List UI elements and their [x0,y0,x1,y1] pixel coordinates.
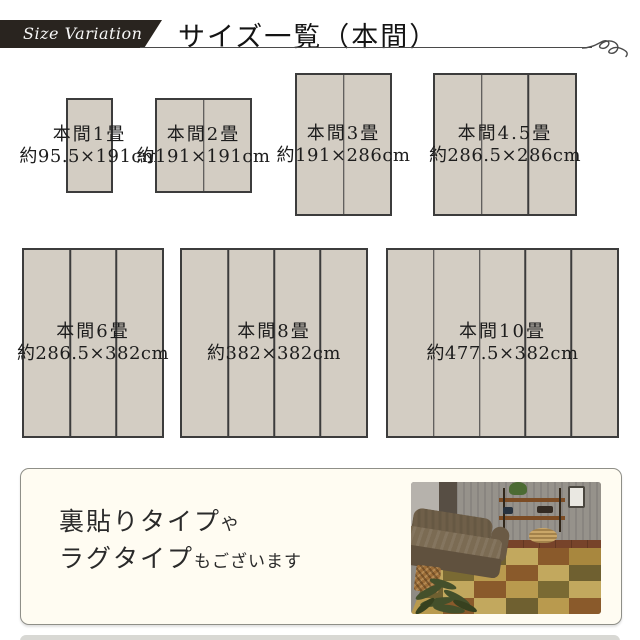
rug-cell [569,598,601,615]
size-label: 本間3畳約191×286cm [277,123,411,167]
size-dimensions: 約191×286cm [277,145,411,167]
size-swatch-5: 本間6畳約286.5×382cm [22,248,164,438]
size-swatch-6: 本間8畳約382×382cm [180,248,368,438]
size-name: 本間8畳 [207,321,341,343]
photo-hanging-cloth [568,486,585,508]
photo-shelf [499,516,565,520]
size-name: 本間4.5畳 [429,123,581,145]
size-label: 本間6畳約286.5×382cm [17,321,169,365]
next-section-edge [20,635,620,640]
size-label: 本間10畳約477.5×382cm [426,321,578,365]
footer-note-text: 裏貼りタイプや ラグタイプもございます [59,505,302,579]
footer-note-line2: ラグタイプもございます [59,542,302,579]
ribbon-label: Size Variation [0,20,162,47]
size-swatch-7: 本間10畳約477.5×382cm [386,248,619,438]
section-ribbon: Size Variation [0,20,162,48]
footer-note-line1: 裏貼りタイプや [59,505,302,542]
size-dimensions: 約286.5×382cm [17,343,169,365]
rug-cell [538,581,570,598]
size-swatch-3: 本間3畳約191×286cm [295,73,392,216]
photo-shelf-items [537,506,553,513]
rug-cell [569,548,601,565]
photo-basket [529,528,557,543]
size-name: 本間3畳 [277,123,411,145]
size-dimensions: 約477.5×382cm [426,343,578,365]
rug-cell [538,598,570,615]
size-chart-page: Size Variation サイズ一覧（本間） 本間1畳約95.5×191cm… [0,0,640,640]
size-name: 本間6畳 [17,321,169,343]
size-dimensions: 約191×191cm [137,146,271,168]
rug-cell [569,581,601,598]
photo-shelf-leg [559,488,561,532]
size-label: 本間4.5畳約286.5×286cm [429,123,581,167]
size-dimensions: 約286.5×286cm [429,145,581,167]
rug-cell [506,548,538,565]
header-rule [140,47,592,48]
size-dimensions: 約382×382cm [207,343,341,365]
page-title: サイズ一覧（本間） [178,15,438,54]
flourish-icon [582,36,632,62]
rug-cell [506,598,538,615]
size-swatch-2: 本間2畳約191×191cm [155,98,252,193]
photo-shelf [499,498,565,502]
photo-plant-leaves [413,554,493,614]
size-name: 本間2畳 [137,124,271,146]
rug-cell [538,565,570,582]
size-label: 本間8畳約382×382cm [207,321,341,365]
rug-cell [569,565,601,582]
footer-note-box: 裏貼りタイプや ラグタイプもございます [20,468,622,625]
photo-shelf-plant [509,482,527,495]
room-photo [411,482,601,614]
size-label: 本間2畳約191×191cm [137,124,271,168]
size-name: 本間10畳 [426,321,578,343]
size-swatch-1: 本間1畳約95.5×191cm [66,98,113,193]
rug-cell [506,565,538,582]
photo-shelf-pot [503,507,513,514]
rug-cell [538,548,570,565]
size-swatch-4: 本間4.5畳約286.5×286cm [433,73,577,216]
rug-cell [506,581,538,598]
